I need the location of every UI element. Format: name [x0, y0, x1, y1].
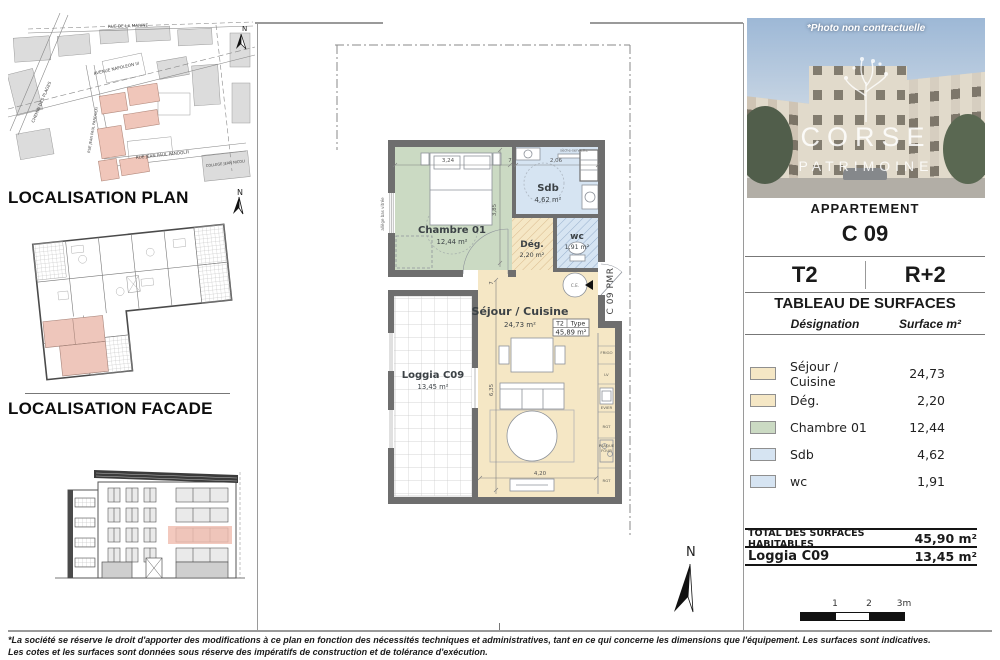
facade-highlight-band [168, 526, 232, 544]
row-value: 4,62 [885, 447, 945, 462]
row-label: wc [790, 474, 885, 489]
plan-north-arrow: N [668, 540, 704, 618]
swatch-chambre [750, 421, 776, 434]
type-box-type: T2 [555, 321, 564, 328]
type-floor-row: T2 R+2 [745, 258, 985, 291]
type-box: T2 Type 45,89 m² [553, 319, 589, 337]
map-north-n: N [242, 25, 247, 33]
dim-sdb-width: 2,06 [550, 158, 563, 164]
unit-type: T2 [745, 262, 865, 288]
watermark-brand-top: CORSE [747, 122, 985, 153]
total-row: TOTAL DES SURFACES HABITABLES 45,90 m² [748, 531, 977, 546]
facade-roof [94, 470, 238, 483]
kitchen-label-evier: EVIER [601, 405, 613, 410]
room-label-chambre: Chambre 01 [418, 225, 486, 236]
scale-seg-3 [870, 612, 905, 621]
table-row: Séjour / Cuisine 24,73 [745, 360, 985, 387]
panel-rule-1 [745, 256, 985, 257]
room-label-sdb: Sdb [537, 183, 559, 194]
plan-north-n: N [686, 545, 696, 560]
total-rule-bottom [745, 564, 977, 566]
apartment-code: C 09 [745, 221, 985, 247]
localisation-facade-heading: LOCALISATION FACADE [8, 399, 213, 419]
footer-center-tick [499, 623, 500, 630]
row-value: 2,20 [885, 393, 945, 408]
scale-seg-2 [835, 612, 870, 621]
swatch-sejour [750, 367, 776, 380]
watermark-tree-icon [836, 52, 896, 124]
surfaces-table-title: TABLEAU DE SURFACES [745, 295, 985, 312]
row-label: Dég. [790, 393, 885, 408]
scale-tick-2: 2 [861, 599, 877, 609]
row-label: Chambre 01 [790, 420, 885, 435]
kitchen-label-lv: LV [604, 372, 609, 377]
top-rule-right [590, 22, 743, 24]
disclaimer-line-2: Les cotes et les surfaces sont données s… [8, 647, 488, 657]
panel-rule-3 [745, 334, 985, 335]
row-label: Séjour / Cuisine [790, 359, 885, 389]
room-area-chambre: 12,44 m² [437, 238, 468, 246]
kitchen-label-frigo: FRIGO [600, 350, 612, 355]
watermark-brand-bottom: PATRIMOINE [747, 158, 985, 174]
row-value: 1,91 [885, 474, 945, 489]
disclaimer-line-1: *La société se réserve le droit d'apport… [8, 635, 931, 645]
kitchen-label-rgt1: RGT [603, 424, 612, 429]
room-area-sejour: 24,73 m² [504, 321, 536, 329]
scale-tick-3: 3m [891, 599, 917, 609]
facade-left-wing [68, 490, 98, 578]
window-annotation: allège bas vitrée [380, 197, 385, 231]
dim-wall-mid: 7 [489, 281, 495, 285]
left-section-divider [25, 393, 230, 394]
total-value: 45,90 m² [915, 531, 977, 546]
divider-right-column [743, 23, 744, 632]
table-row: Dég. 2,20 [745, 387, 985, 414]
room-area-sdb: 4,62 m² [535, 196, 562, 204]
north-n: N [237, 188, 243, 197]
loggia-label: Loggia C09 [748, 549, 915, 564]
swatch-sdb [750, 448, 776, 461]
floorplan-sheet: RUE DE LA MARINE AVENUE NAPOLEON III CHE… [0, 0, 1000, 660]
loggia-value: 13,45 m² [915, 549, 977, 564]
surfaces-table: Séjour / Cuisine 24,73 Dég. 2,20 Chambre… [745, 360, 985, 495]
dim-sejour-width: 4,20 [534, 471, 547, 477]
footer-rule [8, 630, 992, 632]
plan-heading-north-arrow: N [228, 186, 250, 216]
building-render-photo: CORSE PATRIMOINE *Photo non contractuell… [747, 18, 985, 198]
room-area-deg: 2,20 m² [520, 252, 545, 259]
dim-chambre-width: 3,24 [442, 158, 455, 164]
facade-drawing [50, 450, 250, 590]
water-heater-annotation: C.E. [571, 283, 579, 288]
photo-street [747, 178, 985, 198]
room-label-deg: Dég. [520, 239, 543, 250]
location-street-map: RUE DE LA MARINE AVENUE NAPOLEON III CHE… [8, 13, 255, 185]
apartment-label: APPARTEMENT [745, 201, 985, 216]
scale-seg-1 [800, 612, 835, 621]
divider-left-column [257, 23, 258, 632]
row-value: 12,44 [885, 420, 945, 435]
row-label: Sdb [790, 447, 885, 462]
swatch-wc [750, 475, 776, 488]
room-label-loggia: Loggia C09 [402, 370, 465, 381]
room-area-loggia: 13,45 m² [418, 383, 449, 391]
towel-dryer-annotation: sèche-serviette [560, 149, 589, 153]
col-header-designation: Désignation [770, 317, 880, 331]
unit-floor: R+2 [866, 262, 986, 288]
table-row: wc 1,91 [745, 468, 985, 495]
table-row: Sdb 4,62 [745, 441, 985, 468]
dim-sejour-height: 6,35 [489, 383, 495, 396]
room-label-sejour: Séjour / Cuisine [472, 305, 569, 318]
photo-caption: *Photo non contractuelle [747, 23, 985, 34]
swatch-deg [750, 394, 776, 407]
entry-label: C 09 PMR [606, 268, 616, 315]
scale-tick-1: 1 [827, 599, 843, 609]
type-box-label: Type [570, 321, 586, 328]
kitchen-label-four: FOUR [601, 448, 612, 453]
dim-wall-top: 7 [508, 158, 512, 164]
room-area-wc: 1,91 m² [565, 244, 590, 251]
room-label-wc: wc [570, 232, 584, 242]
panel-rule-2 [745, 292, 985, 293]
apartment-floor-plan: 3,24 7 2,06 3,85 7 6,35 4,20 Chambre 01 … [330, 38, 645, 545]
loggia-row: Loggia C09 13,45 m² [748, 548, 977, 564]
row-value: 24,73 [885, 366, 945, 381]
col-header-surface: Surface m² [880, 317, 980, 331]
type-box-area: 45,89 m² [556, 329, 587, 337]
dim-chambre-height: 3,85 [492, 203, 498, 216]
localisation-plan-heading: LOCALISATION PLAN [8, 188, 189, 208]
table-row: Chambre 01 12,44 [745, 414, 985, 441]
scale-bar [800, 612, 905, 621]
floorplan-overview [25, 214, 245, 384]
kitchen-label-rgt2: RGT [603, 478, 612, 483]
